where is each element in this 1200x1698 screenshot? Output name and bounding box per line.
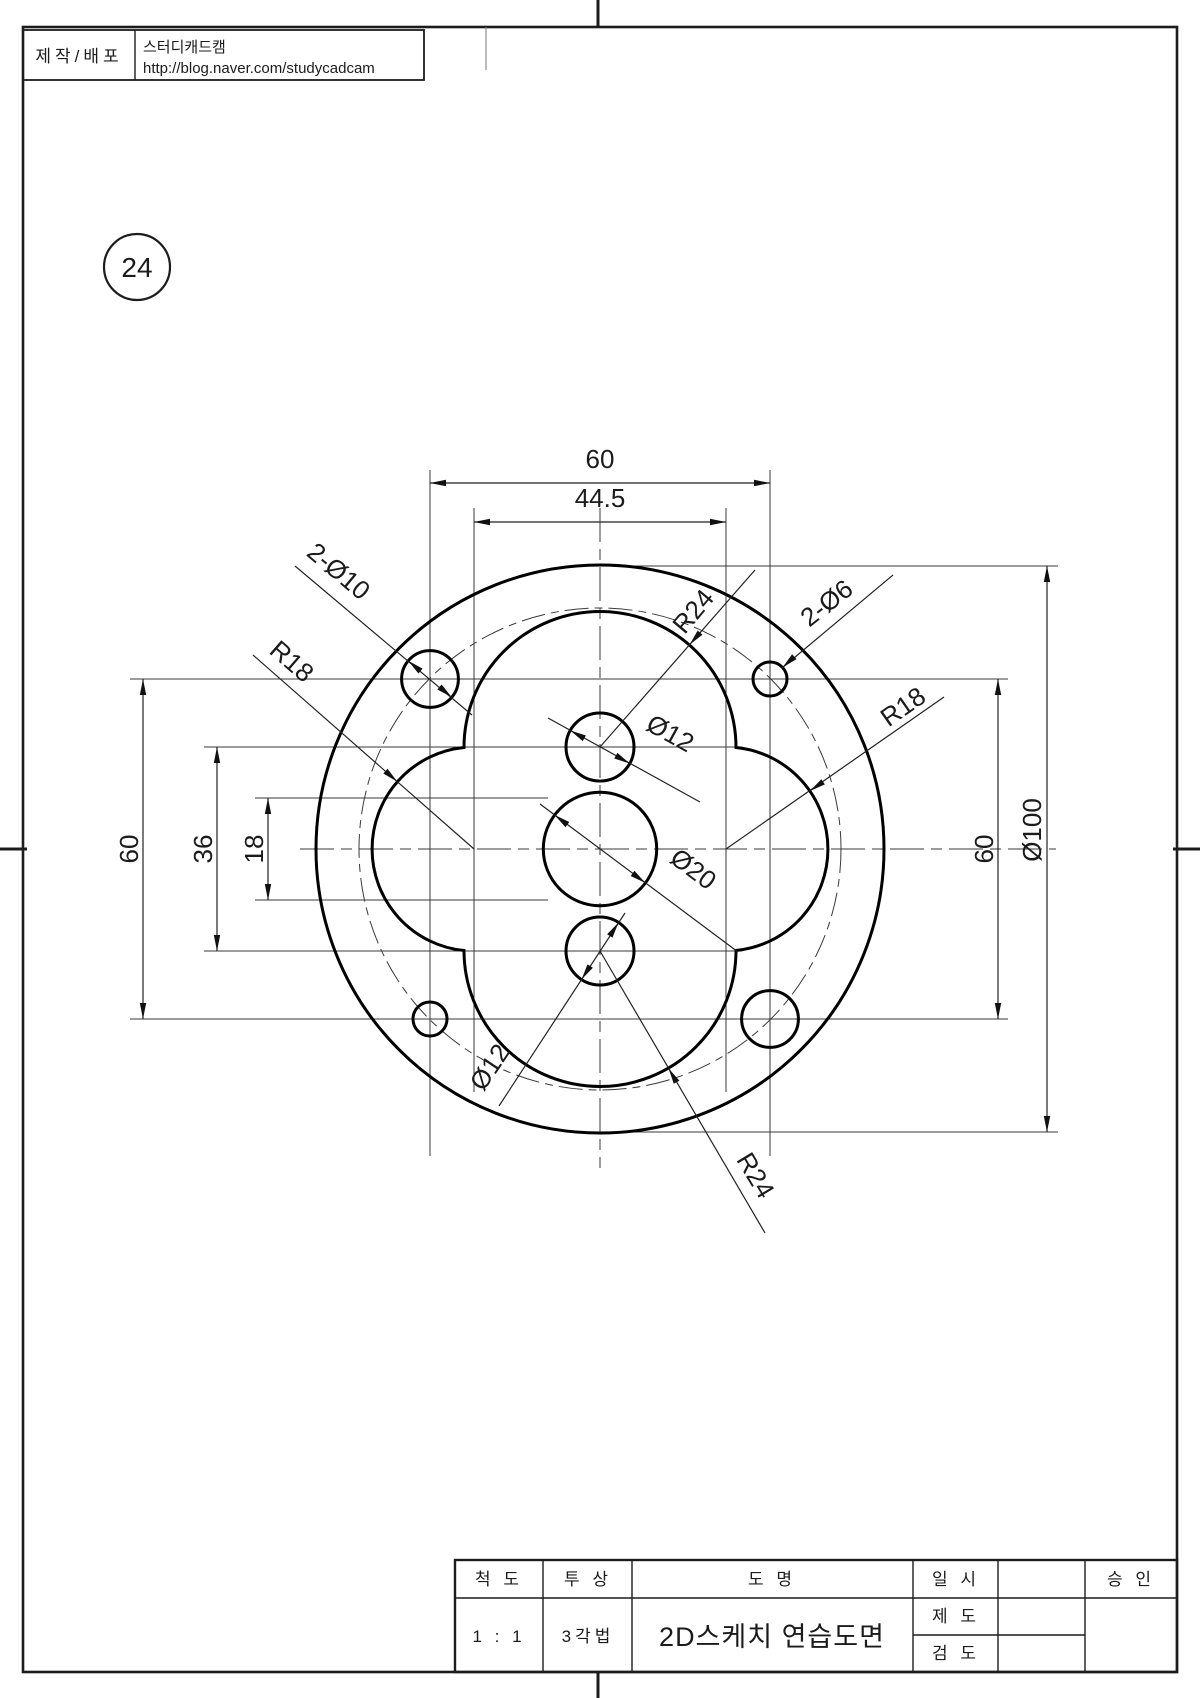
approve-label: 승 인 [1107,1570,1155,1589]
check-label: 검 도 [932,1644,980,1663]
scale-value: 1 : 1 [472,1627,525,1646]
arrowhead [140,679,146,695]
centerlines [130,470,1058,1168]
dim-hole-top: Ø12 [642,708,700,758]
dim-radius-left: R18 [264,634,320,688]
arrowhead [214,935,220,951]
arrowhead [607,923,618,938]
arrowhead [710,519,726,525]
arrowheads [140,480,1050,1132]
arrowhead [995,1003,1001,1019]
dim-bolt-span-top: 60 [586,444,615,474]
arrowhead [214,747,220,763]
arrowhead [1044,566,1050,582]
part-number: 24 [121,252,152,283]
leader-radius-right [726,697,944,849]
arrowhead [265,798,271,814]
arrowhead [783,654,797,667]
arrowhead [437,685,451,698]
projection-value: 3각법 [562,1627,615,1646]
dim-hole-span-left: 36 [188,835,218,864]
projection-label: 투 상 [564,1570,612,1589]
arrowhead [669,1068,680,1083]
dimension-lines [143,483,1047,1233]
dim-holes-large: 2-Ø10 [301,536,376,605]
info-box-company: 스터디캐드캠 [143,39,226,56]
dim-center-span-left: 18 [239,835,269,864]
drawing-name-value: 2D스케치 연습도면 [659,1622,885,1652]
arrowhead [754,480,770,486]
dim-holes-small: 2-Ø6 [794,573,858,632]
name-label: 도 명 [748,1570,796,1589]
arrowhead [631,871,646,883]
leader-radius-bottom [600,951,765,1233]
dim-bolt-span-left: 60 [114,835,144,864]
title-block: 척 도 투 상 도 명 일 시 승 인 제 도 검 도 1 : 1 3각법 2D… [455,1560,1177,1672]
dim-hole-bottom: Ø12 [463,1038,515,1096]
dim-hole-center: Ø20 [665,842,722,896]
part-number-balloon: 24 [104,234,170,300]
arrowhead [140,1003,146,1019]
arrowhead [995,679,1001,695]
dim-radius-top: R24 [666,583,720,639]
arrowhead [1044,1116,1050,1132]
info-box: 제작/배포 스터디캐드캠 http://blog.naver.com/study… [23,30,424,80]
dim-bolt-span-right: 60 [969,835,999,864]
arrowhead [582,964,593,979]
info-box-label: 제작/배포 [35,47,122,66]
arrowhead [474,519,490,525]
date-label: 일 시 [932,1570,980,1589]
dim-radius-right: R18 [875,681,931,733]
cad-drawing: 제작/배포 스터디캐드캠 http://blog.naver.com/study… [0,0,1200,1698]
scale-label: 척 도 [475,1570,523,1589]
arrowhead [430,480,446,486]
arrowhead [555,815,570,827]
draft-label: 제 도 [932,1607,980,1626]
dim-outer-diameter: Ø100 [1017,798,1047,862]
arrowhead [265,884,271,900]
arrowhead [570,731,586,742]
dim-lobe-span: 44.5 [575,483,626,513]
leader-hole-bottom [499,913,625,1106]
arrowhead [614,753,630,764]
drawing-sheet: { "sheet": { "part_number": "24" }, "inf… [0,0,1200,1698]
dim-radius-bottom: R24 [731,1147,781,1203]
info-box-url: http://blog.naver.com/studycadcam [143,60,375,77]
